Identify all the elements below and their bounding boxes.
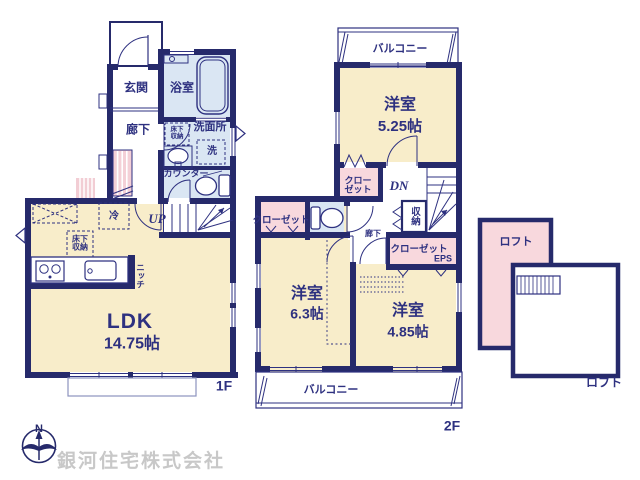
label-loft-outer: ロフト bbox=[586, 377, 622, 390]
stairs-upper-run bbox=[112, 150, 133, 199]
label-niche: ニッチ bbox=[136, 263, 145, 289]
label-underfloor-storage-wash: 床下収納 bbox=[170, 127, 184, 141]
label-up: UP bbox=[148, 212, 165, 226]
label-storage-2f: 収納 bbox=[409, 207, 419, 226]
label-eps: EPS bbox=[434, 254, 452, 263]
exterior-fixture bbox=[99, 94, 107, 108]
label-underfloor-storage-ldk: 床下収納 bbox=[71, 236, 89, 253]
company-name: 銀河住宅株式会社 bbox=[57, 446, 225, 473]
balcony-bottom bbox=[256, 372, 462, 408]
label-closet-left: クローゼット bbox=[252, 216, 309, 226]
floorplan-page: 玄関 浴室 廊下 床下収納 洗面所 洗 カウンター 冷 UP 床下収納 ニッチ … bbox=[0, 0, 640, 480]
label-washer: 洗 bbox=[207, 147, 217, 158]
label-room-525-size: 5.25帖 bbox=[378, 119, 422, 135]
label-ldk: LDK bbox=[107, 311, 153, 333]
label-room-525: 洋室 bbox=[384, 98, 416, 115]
label-floor-1f: 1F bbox=[216, 379, 232, 394]
label-counter: カウンター bbox=[163, 169, 208, 178]
label-closet-top: クローゼット bbox=[343, 177, 374, 196]
label-compass-north: N bbox=[35, 424, 43, 436]
label-washroom: 洗面所 bbox=[194, 122, 227, 134]
label-balcony-top: バルコニー bbox=[373, 44, 428, 56]
label-hall-1f: 廊下 bbox=[126, 124, 150, 137]
label-loft-inner: ロフト bbox=[500, 237, 533, 249]
label-room-63: 洋室 bbox=[291, 287, 323, 304]
kitchen bbox=[31, 257, 128, 283]
exterior-fixture bbox=[99, 155, 107, 169]
label-floor-2f: 2F bbox=[444, 419, 460, 434]
label-balcony-bottom: バルコニー bbox=[304, 385, 359, 397]
label-entrance: 玄関 bbox=[124, 82, 148, 95]
label-room-485-size: 4.85帖 bbox=[387, 325, 428, 340]
label-ldk-size: 14.75帖 bbox=[104, 337, 160, 354]
terrace bbox=[68, 378, 196, 396]
label-room-485: 洋室 bbox=[392, 304, 424, 321]
label-dn: DN bbox=[390, 179, 409, 193]
floorplan-drawing bbox=[0, 0, 640, 480]
vent-mark bbox=[236, 126, 245, 141]
approach-steps bbox=[76, 178, 95, 200]
label-room-63-size: 6.3帖 bbox=[290, 307, 323, 322]
label-fridge: 冷 bbox=[109, 212, 119, 223]
label-bath: 浴室 bbox=[170, 82, 194, 95]
label-hall-2f: 廊下 bbox=[365, 230, 381, 238]
porch bbox=[110, 22, 162, 66]
room-525 bbox=[340, 68, 456, 162]
loft-ladder bbox=[517, 276, 560, 294]
vent-mark bbox=[16, 228, 25, 243]
toilet-2f bbox=[311, 207, 343, 229]
